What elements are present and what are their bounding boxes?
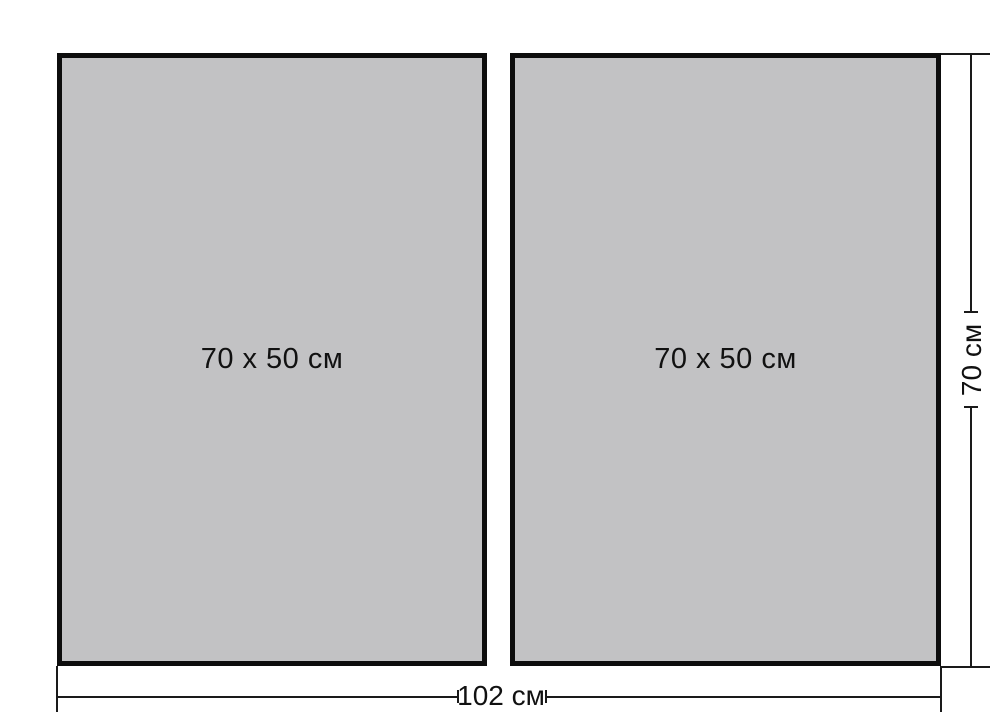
dimension-diagram: 70 x 50 см 70 x 50 см 70 см 102 см [0, 0, 1000, 726]
width-dimension-line-left-segment [56, 696, 457, 698]
width-extension-line-right [940, 666, 942, 712]
panel-left: 70 x 50 см [57, 53, 487, 666]
panel-right: 70 x 50 см [510, 53, 941, 666]
total-width-label: 102 см [446, 681, 556, 711]
height-extension-line-bottom [941, 666, 990, 668]
panel-right-size-label: 70 x 50 см [654, 343, 797, 376]
height-extension-line-top [941, 53, 990, 55]
height-dimension-line-upper-segment [970, 54, 972, 312]
total-height-label: 70 см [912, 300, 1000, 420]
panel-left-size-label: 70 x 50 см [201, 343, 344, 376]
width-dimension-line-right-segment [547, 696, 940, 698]
height-dimension-line-lower-segment [970, 408, 972, 668]
width-extension-line-left [56, 666, 58, 712]
